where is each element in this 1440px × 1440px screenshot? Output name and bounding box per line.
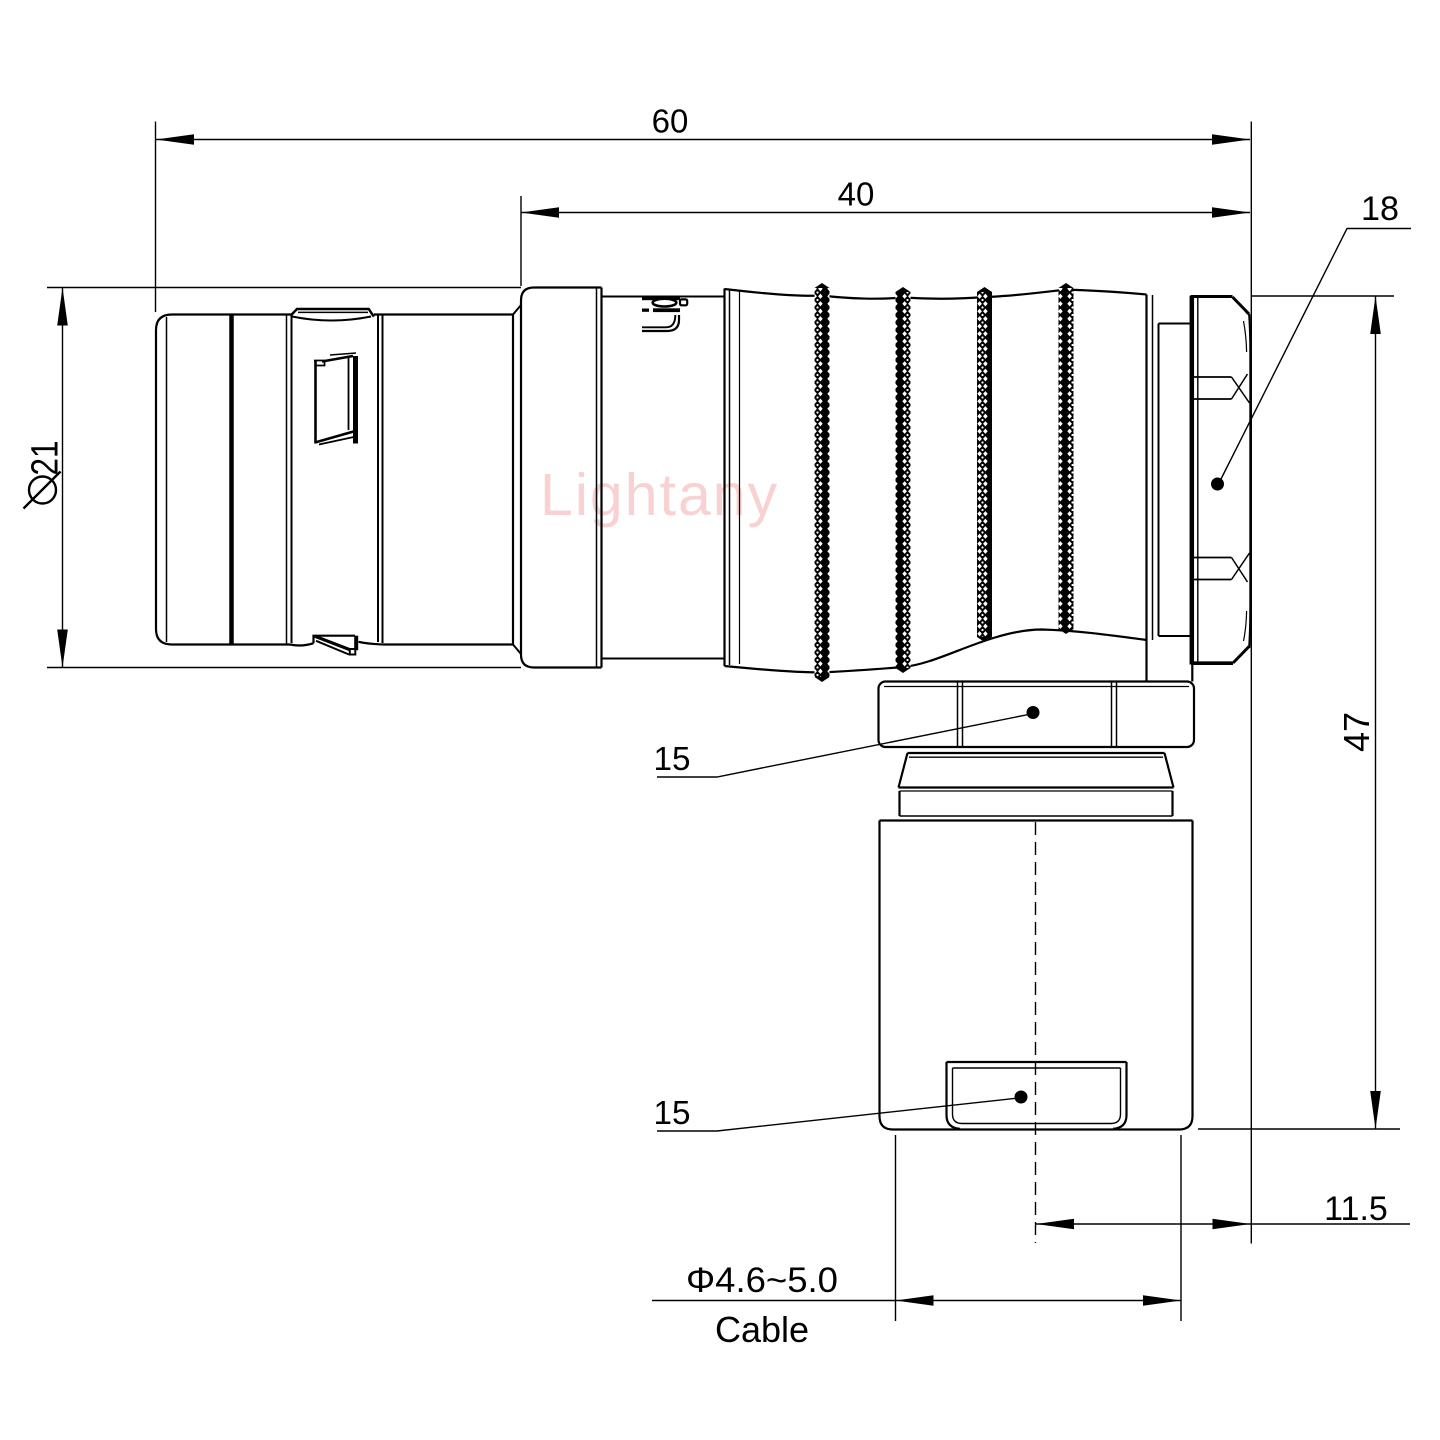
- svg-text:15: 15: [654, 740, 691, 777]
- svg-text:15: 15: [654, 1094, 691, 1131]
- svg-text:60: 60: [652, 103, 689, 140]
- svg-text:Lightany: Lightany: [540, 462, 779, 528]
- svg-text:18: 18: [1361, 190, 1399, 228]
- svg-text:40: 40: [838, 176, 875, 213]
- svg-text:47: 47: [1336, 712, 1377, 752]
- svg-text:11.5: 11.5: [1324, 1190, 1388, 1228]
- svg-text:Cable: Cable: [715, 1309, 809, 1350]
- svg-text:Φ4.6~5.0: Φ4.6~5.0: [686, 1261, 838, 1300]
- svg-text:21: 21: [25, 441, 67, 476]
